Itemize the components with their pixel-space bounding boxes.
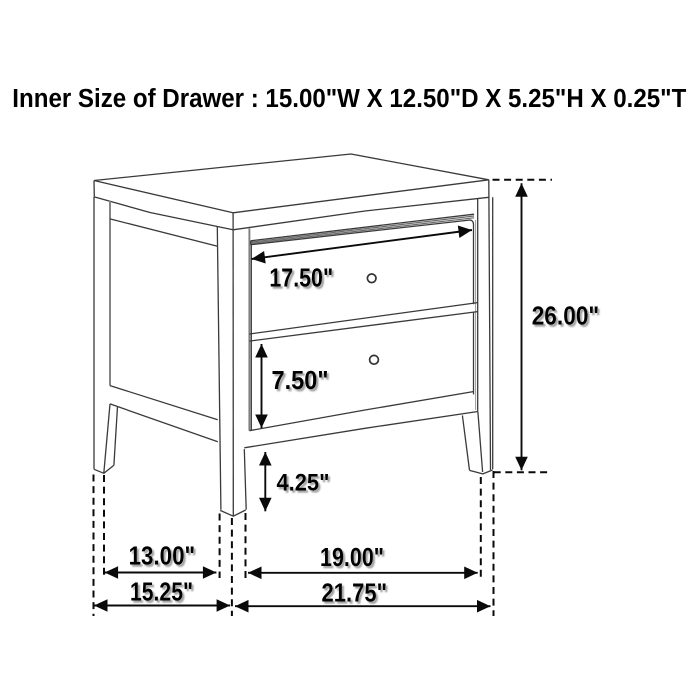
svg-text:19.00": 19.00" bbox=[320, 542, 384, 572]
svg-text:17.50": 17.50" bbox=[269, 263, 333, 293]
svg-text:15.25": 15.25" bbox=[130, 577, 193, 607]
svg-text:26.00": 26.00" bbox=[532, 300, 600, 330]
svg-text:4.25": 4.25" bbox=[277, 470, 330, 497]
svg-text:Inner Size of Drawer : 15.00"W: Inner Size of Drawer : 15.00"W X 12.50"D… bbox=[12, 85, 686, 113]
svg-text:13.00": 13.00" bbox=[129, 541, 196, 571]
svg-text:21.75": 21.75" bbox=[322, 578, 388, 608]
svg-text:7.50": 7.50" bbox=[272, 365, 329, 395]
